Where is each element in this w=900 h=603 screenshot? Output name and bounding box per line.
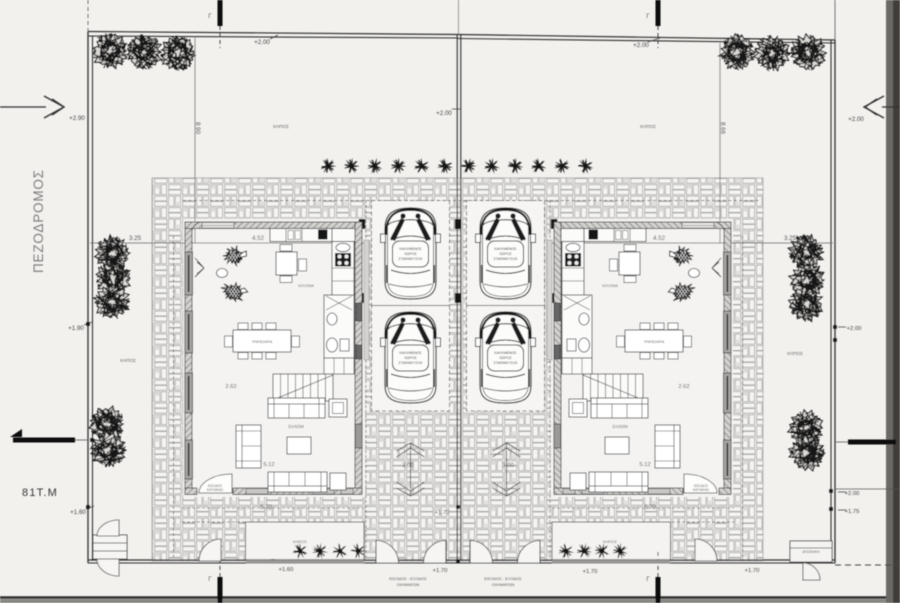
svg-text:+2.00: +2.00 [436,110,452,117]
svg-text:+1.90: +1.90 [68,325,84,332]
svg-text:ΣΤΑΘΜΕΥΣΗΣ: ΣΤΑΘΜΕΥΣΗΣ [398,257,423,261]
svg-text:ΤΡΑΠΕΖΑΡΙΑ: ΤΡΑΠΕΖΑΡΙΑ [252,340,274,344]
svg-text:3.25: 3.25 [784,235,797,242]
svg-text:+2.00: +2.00 [847,326,862,332]
svg-text:ΚΗΠΟΣ: ΚΗΠΟΣ [273,124,289,129]
svg-text:3.00: 3.00 [502,463,514,469]
svg-text:ΣΤΑΘΜΕΥΣΗΣ: ΣΤΑΘΜΕΥΣΗΣ [493,361,518,365]
svg-text:ΣΤΑΘΜΕΥΣΗΣ: ΣΤΑΘΜΕΥΣΗΣ [398,361,423,365]
svg-text:ΚΟΥΖΙΝΑ: ΚΟΥΖΙΝΑ [298,284,314,288]
svg-text:ΑΠΟΘΗΚΗ: ΑΠΟΘΗΚΗ [802,550,820,554]
svg-text:ΧΩΡΟΣ: ΧΩΡΟΣ [404,252,417,256]
svg-text:ΚΑΛΥΜΕΝΟΣ: ΚΑΛΥΜΕΝΟΣ [494,247,517,251]
svg-text:+2.00: +2.00 [848,116,864,123]
svg-text:5.12: 5.12 [263,462,274,468]
svg-text:2.62: 2.62 [678,384,689,390]
svg-text:+1.70: +1.70 [433,568,448,574]
svg-text:2.62: 2.62 [225,384,236,390]
svg-text:+1.70: +1.70 [583,569,598,575]
svg-text:3.25: 3.25 [129,235,142,242]
svg-text:ΚΗΠΟΣ: ΚΗΠΟΣ [603,539,618,544]
svg-text:5.70: 5.70 [644,504,657,511]
svg-text:ΟΧΗΜΑΤΩΝ: ΟΧΗΜΑΤΩΝ [397,582,420,587]
svg-text:ΚΑΛΥΜΕΝΟΣ: ΚΑΛΥΜΕΝΟΣ [399,351,422,355]
svg-text:+2.00: +2.00 [845,491,860,497]
svg-text:ΕΙΣΟΔΟΣ - ΕΞΟΔΟΣ: ΕΙΣΟΔΟΣ - ΕΞΟΔΟΣ [484,576,522,581]
svg-text:+2.00: +2.00 [254,39,270,46]
svg-text:3.00: 3.00 [402,463,414,469]
svg-text:ΚΑΤΟΙΚΙΑΣ: ΚΑΤΟΙΚΙΑΣ [207,488,223,492]
svg-text:8.66: 8.66 [719,122,726,135]
svg-text:ΚΗΠΟΣ: ΚΗΠΟΣ [293,539,308,544]
svg-text:ΚΑΛΥΜΕΝΟΣ: ΚΑΛΥΜΕΝΟΣ [494,351,517,355]
svg-text:ΧΩΡΟΣ: ΧΩΡΟΣ [404,356,417,360]
svg-text:ΧΩΡΟΣ: ΧΩΡΟΣ [499,356,512,360]
svg-text:+1.70: +1.70 [745,568,760,574]
svg-text:81T.M: 81T.M [22,487,58,499]
svg-text:ΚΗΠΟΣ: ΚΗΠΟΣ [787,351,803,356]
svg-text:+2.00: +2.00 [633,42,649,49]
svg-text:5.70: 5.70 [260,504,273,511]
svg-text:ΤΡΑΠΕΖΑΡΙΑ: ΤΡΑΠΕΖΑΡΙΑ [644,340,666,344]
svg-text:ΣΤΑΘΜΕΥΣΗΣ: ΣΤΑΘΜΕΥΣΗΣ [493,257,518,261]
svg-text:ΚΑΛΥΜΕΝΟΣ: ΚΑΛΥΜΕΝΟΣ [399,247,422,251]
svg-text:ΚΗΠΟΣ: ΚΗΠΟΣ [120,358,136,363]
svg-text:4.52: 4.52 [653,235,666,242]
svg-text:+1.70: +1.70 [435,510,450,516]
svg-text:8.90: 8.90 [194,122,201,135]
svg-text:ΠΕΖΟΔΡΟΜΟΣ: ΠΕΖΟΔΡΟΜΟΣ [31,169,46,273]
svg-text:ΚΗΠΟΣ: ΚΗΠΟΣ [640,124,656,129]
svg-text:+1.75: +1.75 [845,509,860,515]
svg-text:ΚΟΥΖΙΝΑ: ΚΟΥΖΙΝΑ [602,284,618,288]
svg-text:4.52: 4.52 [252,235,265,242]
svg-text:+2.90: +2.90 [69,115,85,122]
svg-text:ΕΙΣΟΔΟΣ - ΕΞΟΔΟΣ: ΕΙΣΟΔΟΣ - ΕΞΟΔΟΣ [389,576,427,581]
svg-text:ΣΑΛΟΝΙ: ΣΑΛΟΝΙ [288,424,304,429]
svg-text:5.12: 5.12 [639,462,650,468]
svg-text:+1.60: +1.60 [70,509,86,516]
svg-text:ΚΑΤΟΙΚΙΑΣ: ΚΑΤΟΙΚΙΑΣ [693,488,709,492]
svg-text:ΟΧΗΜΑΤΩΝ: ΟΧΗΜΑΤΩΝ [492,582,515,587]
svg-text:ΣΑΛΟΝΙ: ΣΑΛΟΝΙ [612,424,628,429]
svg-text:+1.60: +1.60 [279,567,294,573]
svg-text:ΧΩΡΟΣ: ΧΩΡΟΣ [499,252,512,256]
